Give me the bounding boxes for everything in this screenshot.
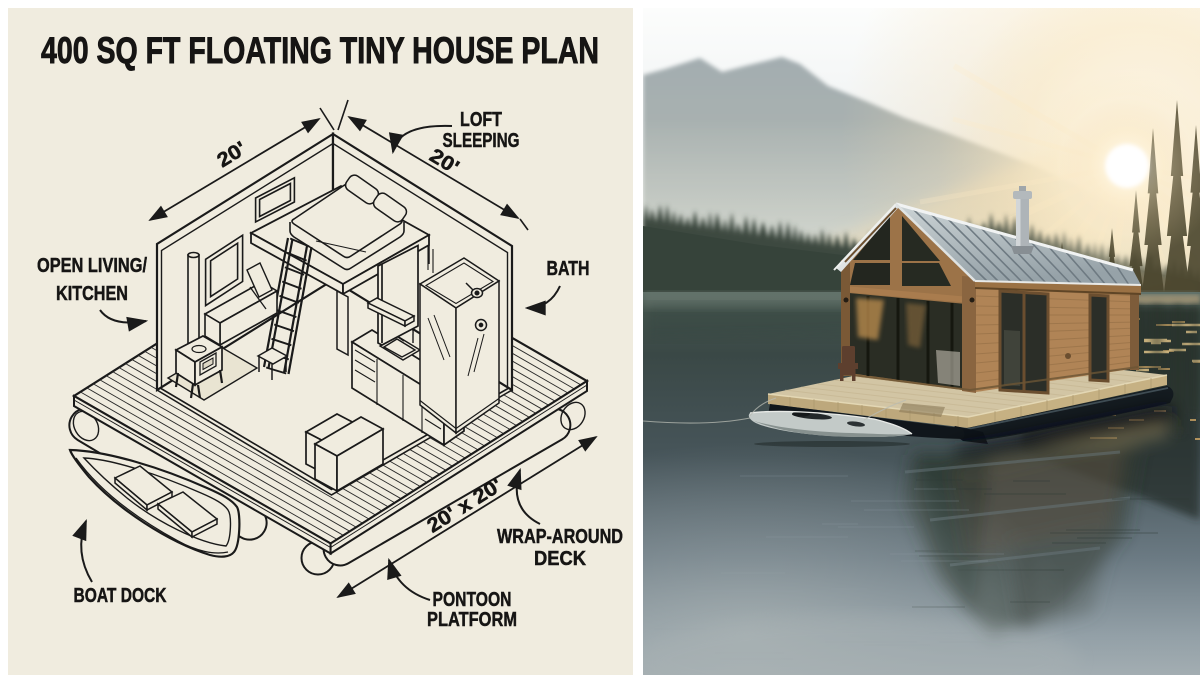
svg-text:LOFT: LOFT [460,108,502,131]
svg-text:OPEN LIVING/: OPEN LIVING/ [37,254,147,277]
svg-text:PLATFORM: PLATFORM [427,608,517,631]
svg-text:400 SQ FT FLOATING TINY HOUSE: 400 SQ FT FLOATING TINY HOUSE PLAN [41,29,599,71]
svg-text:SLEEPING: SLEEPING [443,129,520,152]
svg-text:BATH: BATH [547,257,590,280]
svg-text:WRAP-AROUND: WRAP-AROUND [497,525,623,548]
svg-text:DECK: DECK [534,547,586,570]
svg-text:KITCHEN: KITCHEN [56,282,128,305]
svg-text:BOAT DOCK: BOAT DOCK [74,584,167,607]
